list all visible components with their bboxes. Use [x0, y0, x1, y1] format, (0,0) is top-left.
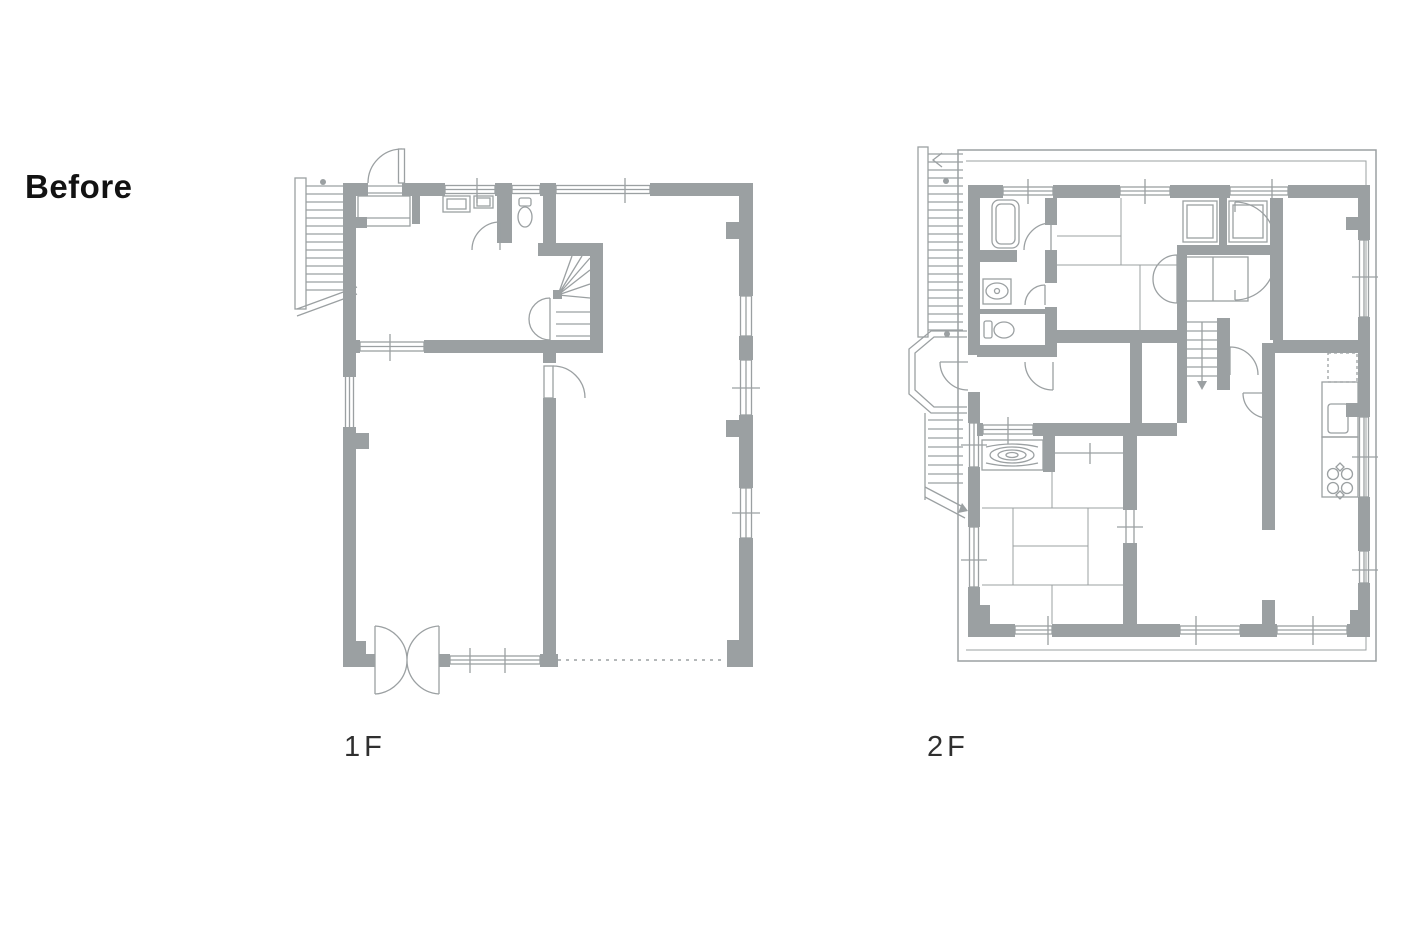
refrigerator-dashed-outline [1328, 353, 1357, 382]
tokonoma-wood-grain [986, 444, 1038, 466]
balcony-outline-2f [958, 150, 1376, 661]
exterior-staircase-2f [909, 147, 968, 518]
floor-plan-canvas: Before [0, 0, 1422, 949]
floor-plan-1f [295, 149, 760, 694]
floor-label-1f: 1F [344, 731, 386, 764]
walls-1f [343, 183, 753, 667]
walls-2f [968, 185, 1370, 637]
stove-burners [1328, 463, 1353, 499]
kitchen-fixtures-2f [1322, 353, 1358, 499]
interior-staircase-2f [1187, 322, 1217, 390]
sink [1328, 404, 1348, 433]
floor-plan-drawing [0, 0, 1422, 949]
entrance-door-1f [368, 149, 405, 183]
genkan-fixtures-1f [358, 196, 493, 226]
floor-plan-2f [909, 147, 1378, 661]
bathroom-fixtures-2f [983, 200, 1019, 338]
floor-label-2f: 2F [927, 731, 969, 764]
